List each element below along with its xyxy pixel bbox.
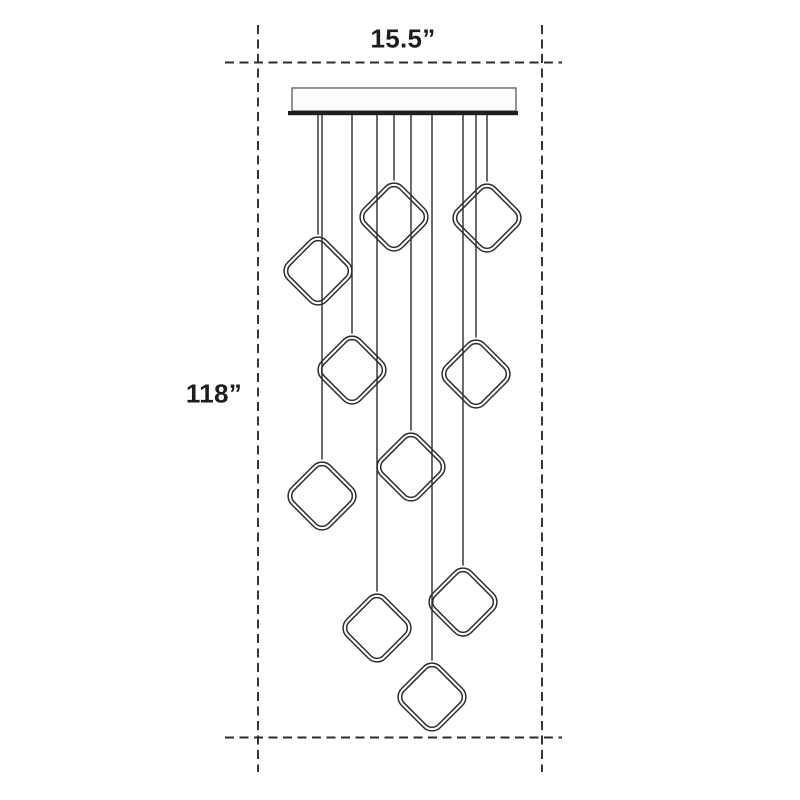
pendant-7 (283, 457, 361, 535)
pendant-6 (372, 428, 450, 506)
pendant-outer-ring (448, 179, 526, 257)
canopy-bar (288, 111, 518, 115)
pendant-inner-ring (442, 340, 510, 408)
pendant-2 (448, 179, 526, 257)
pendant-outer-ring (437, 335, 515, 413)
width-dimension-label: 15.5” (370, 24, 435, 55)
pendant-3 (279, 232, 357, 310)
height-dimension-label: 118” (186, 379, 242, 410)
pendant-outer-ring (313, 331, 391, 409)
pendant-8 (424, 563, 502, 641)
pendant-inner-ring (398, 663, 466, 731)
pendant-outer-ring (279, 232, 357, 310)
pendant-inner-ring (429, 568, 497, 636)
canopy-plate (292, 88, 516, 111)
pendant-outer-ring (355, 178, 433, 256)
pendant-4 (313, 331, 391, 409)
pendant-outer-ring (283, 457, 361, 535)
pendant-5 (437, 335, 515, 413)
pendant-inner-ring (284, 237, 352, 305)
pendant-outer-ring (424, 563, 502, 641)
pendant-inner-ring (377, 433, 445, 501)
dimension-diagram-canvas: 15.5” 118” (0, 0, 800, 800)
pendant-inner-ring (360, 183, 428, 251)
pendant-outer-ring (372, 428, 450, 506)
pendant-inner-ring (288, 462, 356, 530)
pendant-outer-ring (338, 589, 416, 667)
pendant-10 (393, 658, 471, 736)
pendant-9 (338, 589, 416, 667)
pendant-outer-ring (393, 658, 471, 736)
pendant-1 (355, 178, 433, 256)
pendant-inner-ring (343, 594, 411, 662)
pendant-light-diagram-svg (0, 0, 800, 800)
pendant-inner-ring (318, 336, 386, 404)
